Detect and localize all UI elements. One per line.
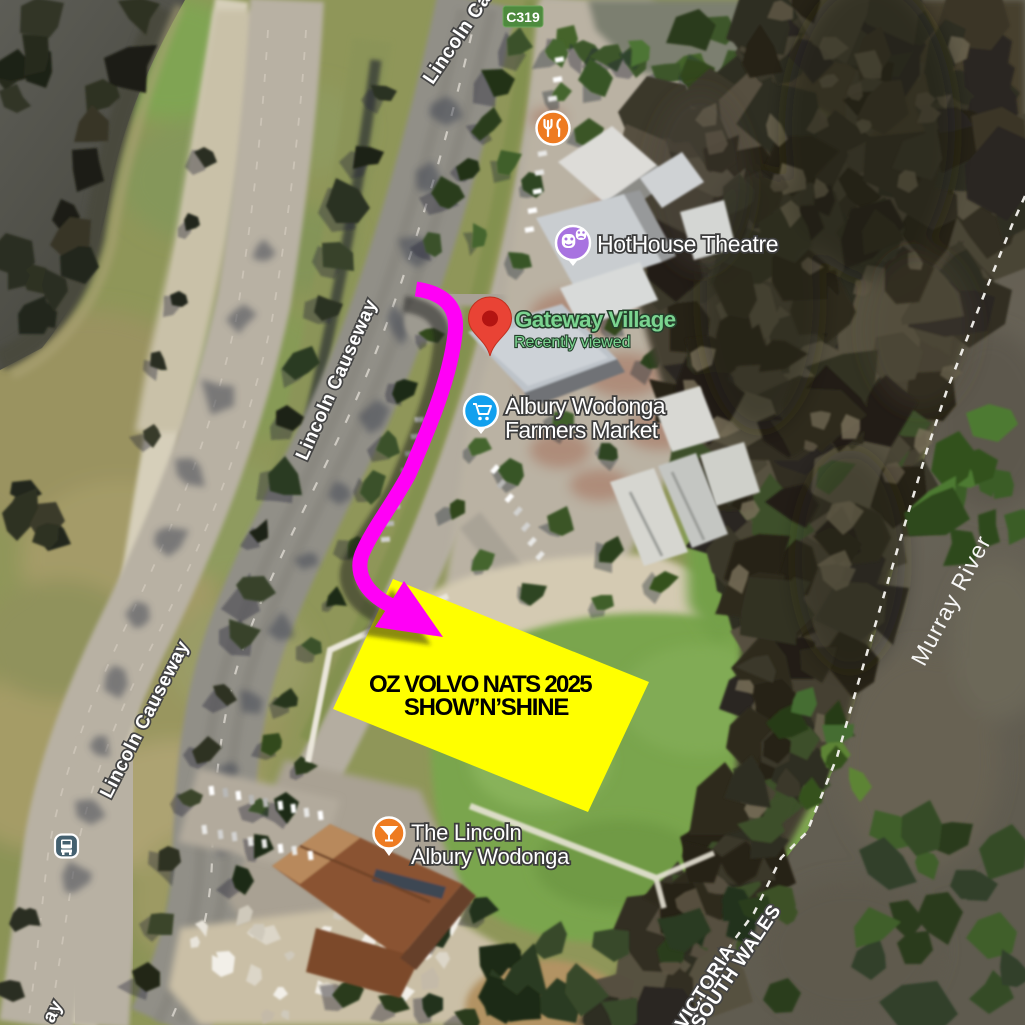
- svg-text:SHOW’N’SHINE: SHOW’N’SHINE: [404, 694, 569, 721]
- svg-text:The Lincoln: The Lincoln: [411, 820, 521, 845]
- svg-text:C319: C319: [506, 9, 540, 25]
- svg-text:Recently viewed: Recently viewed: [514, 334, 631, 351]
- svg-text:Farmers Market: Farmers Market: [505, 417, 659, 443]
- svg-text:HotHouse Theatre: HotHouse Theatre: [597, 231, 778, 257]
- svg-text:Albury Wodonga: Albury Wodonga: [411, 844, 570, 869]
- svg-text:Gateway Village: Gateway Village: [515, 307, 676, 332]
- svg-text:Albury Wodonga: Albury Wodonga: [505, 393, 666, 419]
